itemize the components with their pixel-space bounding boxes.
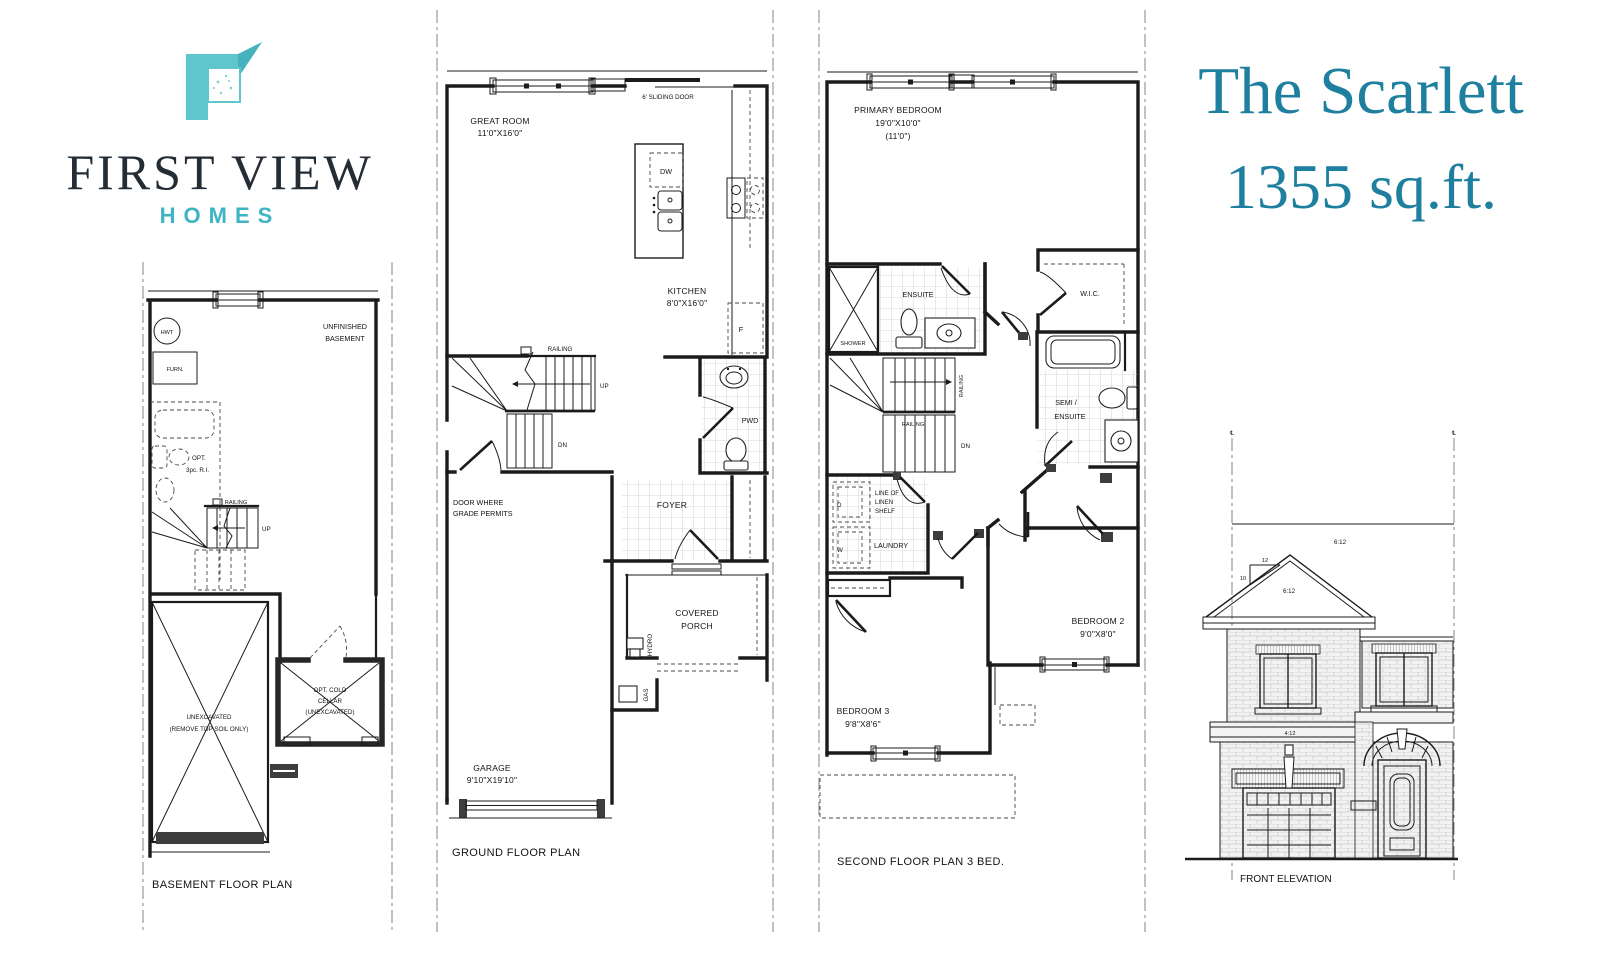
linen-label3: SHELF: [875, 508, 895, 515]
up-label: UP: [262, 526, 271, 533]
brand-sub: HOMES: [40, 203, 400, 229]
model-name: The Scarlett: [1128, 58, 1594, 125]
dn-label: DN: [961, 443, 970, 450]
ground-stairs: RAILING UP DN: [447, 346, 609, 468]
linen-label2: LINEN: [875, 499, 893, 506]
foyer: FOYER: [605, 477, 767, 575]
powder-room: PWD: [665, 357, 767, 473]
linen-label1: LINE OF: [875, 490, 899, 497]
svg-text:HWT: HWT: [161, 330, 174, 336]
kitchen-label: KITCHEN: [668, 286, 707, 296]
kitchen-counter-stove-fridge: F: [727, 90, 763, 355]
railing-label: RAILING: [902, 422, 924, 428]
floorplan-sheet: FIRST VIEW HOMES The Scarlett 1355 sq.ft…: [0, 0, 1600, 971]
hall-doors: [933, 473, 1113, 559]
great-room-dim: 11'0"X16'0": [478, 128, 523, 138]
second-storey-facade: [1227, 629, 1453, 722]
washer-label: W: [837, 547, 843, 554]
gable-roof: 12 10 6:12: [1203, 555, 1375, 629]
kitchen-dim: 8'0"X16'0": [667, 298, 708, 308]
svg-text:3pc. R.I.: 3pc. R.I.: [186, 467, 209, 474]
ground-storey-facade: [1220, 722, 1453, 858]
svg-text:OPT. COLD: OPT. COLD: [314, 687, 347, 694]
semi-ensuite-label1: SEMI /: [1055, 398, 1077, 407]
opt-bath-rough-in: OPT. 3pc. R.I.: [150, 402, 220, 580]
pwd-label: PWD: [742, 416, 759, 425]
railing-label: RAILING: [548, 346, 573, 353]
grade-door-label1: DOOR WHERE: [453, 498, 504, 507]
gas-label: GAS: [643, 688, 650, 701]
centerline-symbol-left: ℄: [1229, 430, 1234, 437]
firstview-homes-logo: FIRST VIEW HOMES: [40, 38, 400, 229]
wic: W.I.C.: [1038, 250, 1138, 332]
kitchen-island: DW: [635, 144, 683, 258]
primary-bedroom-label: PRIMARY BEDROOM: [854, 105, 942, 115]
model-title: The Scarlett 1355 sq.ft.: [1128, 58, 1594, 219]
railing-label: RAILING: [225, 500, 247, 506]
primary-door: [985, 264, 1030, 346]
basement-floor-plan: HWT FURN. UNFINISHED BASEMENT OPT. 3pc. …: [130, 255, 430, 935]
sliding-door-label: 6' SLIDING DOOR: [642, 94, 694, 101]
brand-name: FIRST VIEW: [40, 143, 400, 201]
band-slope: 4:12: [1285, 731, 1296, 737]
bedroom2-dim: 9'0"X8'0": [1080, 629, 1116, 639]
garage-dim: 9'10"X19'10": [467, 775, 517, 785]
second-plan-title: SECOND FLOOR PLAN 3 BED.: [837, 856, 1004, 868]
covered-porch: HYDRO GAS COVERED PORCH: [612, 575, 767, 710]
garage: GARAGE 9'10"X19'10": [447, 477, 612, 818]
unfinished-basement-label2: BASEMENT: [325, 334, 365, 343]
basement-plan-title: BASEMENT FLOOR PLAN: [152, 879, 293, 891]
porch-label2: PORCH: [681, 621, 713, 631]
unfinished-basement-label: UNFINISHED: [323, 322, 367, 331]
fridge-label: F: [739, 325, 744, 334]
second-floor-plan: PRIMARY BEDROOM 19'0"X10'0" (11'0") SHOW…: [805, 5, 1155, 935]
garage-label: GARAGE: [473, 763, 511, 773]
cold-cellar: OPT. COLD CELLAR (UNEXCAVATED): [278, 626, 382, 746]
svg-text:FURN.: FURN.: [166, 367, 184, 373]
gable-slope: 6:12: [1283, 588, 1296, 595]
dn-label: DN: [558, 442, 567, 449]
model-sqft: 1355 sq.ft.: [1128, 155, 1594, 219]
ground-floor-plan: 6' SLIDING DOOR GREAT ROOM 11'0"X16'0" D…: [430, 5, 800, 935]
wic-label: W.I.C.: [1080, 289, 1100, 298]
foyer-label: FOYER: [657, 500, 687, 510]
hydro-label: HYDRO: [647, 634, 654, 657]
laundry: D W LINE OF LINEN SHELF LAUNDRY: [827, 472, 928, 573]
hwt: HWT: [154, 318, 180, 344]
svg-text:OPT.: OPT.: [192, 455, 206, 462]
firstview-logo-icon: [174, 38, 266, 130]
bedroom3-label: BEDROOM 3: [837, 706, 890, 716]
logo-paper: [208, 68, 240, 102]
semi-ensuite-label2: ENSUITE: [1054, 412, 1085, 421]
up-label: UP: [600, 383, 609, 390]
elevation-title: FRONT ELEVATION: [1240, 874, 1332, 885]
dryer-label: D: [837, 502, 842, 509]
ground-plan-title: GROUND FLOOR PLAN: [452, 847, 580, 859]
primary-bedroom-dim: 19'0"X10'0": [875, 118, 921, 128]
party-wall-lines: [819, 10, 1145, 932]
grade-door-label2: GRADE PERMITS: [453, 509, 513, 518]
shower-label: SHOWER: [840, 341, 865, 347]
svg-text:(REMOVE TOP SOIL ONLY): (REMOVE TOP SOIL ONLY): [170, 726, 249, 733]
svg-text:UNEXCAVATED: UNEXCAVATED: [186, 714, 232, 721]
porch-label1: COVERED: [675, 608, 718, 618]
svg-text:(UNEXCAVATED): (UNEXCAVATED): [305, 709, 354, 716]
centerline-symbol-right: ℄: [1451, 430, 1456, 437]
pitch-rise: 10: [1240, 576, 1246, 582]
laundry-label: LAUNDRY: [874, 541, 908, 550]
dishwasher-label: DW: [660, 167, 672, 176]
ensuite-shower: SHOWER ENSUITE: [827, 264, 985, 354]
primary-bedroom-dim2: (11'0"): [885, 131, 910, 141]
grade-door: [447, 441, 612, 472]
great-room-label: GREAT ROOM: [470, 116, 529, 126]
basement-stairs: RAILING UP: [152, 499, 271, 590]
ensuite-label: ENSUITE: [902, 290, 933, 299]
railing-vertical-label: RAILING: [959, 375, 965, 397]
pitch-run: 12: [1262, 558, 1268, 564]
svg-text:CELLAR: CELLAR: [318, 698, 343, 705]
main-roof-slope: 6:12: [1334, 539, 1347, 546]
bedroom2: BEDROOM 2 9'0"X8'0": [988, 512, 1138, 672]
bedroom3-dim: 9'8"X8'6": [845, 719, 881, 729]
bedroom2-label: BEDROOM 2: [1072, 616, 1125, 626]
front-elevation: ℄ ℄ 6:12 12 10 6:12: [1165, 425, 1465, 895]
basement-walls: [148, 291, 378, 856]
logo-fold: [238, 42, 262, 78]
furnace: FURN.: [153, 352, 197, 384]
roof-below-outline: [820, 667, 1035, 818]
second-stairs: RAILING RAILING DN: [830, 358, 970, 472]
